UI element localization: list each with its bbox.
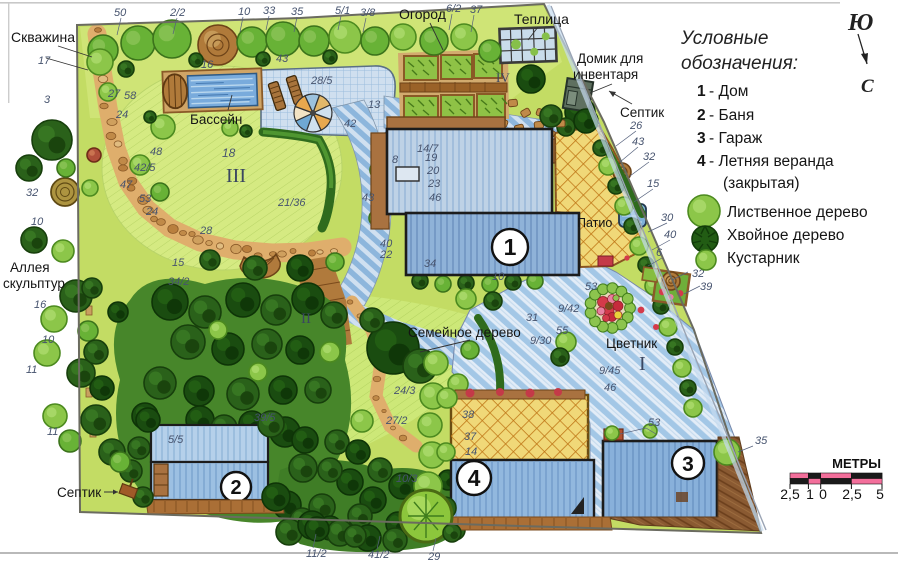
svg-text:2: 2 [230,477,241,499]
svg-text:Условные: Условные [680,28,768,49]
svg-text:3/8: 3/8 [360,7,376,19]
svg-text:35: 35 [755,435,768,447]
svg-text:28: 28 [199,225,213,237]
svg-text:31: 31 [526,312,538,324]
svg-text:Хвойное дерево: Хвойное дерево [727,227,844,244]
svg-text:39: 39 [700,281,712,293]
svg-text:II: II [301,311,311,327]
svg-text:15: 15 [647,178,660,190]
svg-text:55: 55 [556,325,569,337]
svg-text:МЕТРЫ: МЕТРЫ [832,456,881,471]
svg-text:18: 18 [222,146,236,160]
svg-text:Семейное дерево: Семейное дерево [408,325,521,340]
svg-text:40: 40 [664,229,677,241]
svg-text:10/3: 10/3 [396,473,418,485]
svg-text:29: 29 [427,551,440,563]
svg-text:Теплица: Теплица [514,11,569,27]
svg-text:5/5: 5/5 [168,434,184,446]
svg-text:16: 16 [34,299,47,311]
svg-text:2/2: 2/2 [169,7,185,19]
svg-text:41/2: 41/2 [368,549,389,561]
svg-text:Бассейн: Бассейн [190,112,242,127]
svg-text:3: 3 [697,130,706,147]
svg-text:53: 53 [139,193,152,205]
svg-text:Кустарник: Кустарник [727,250,800,267]
svg-text:11: 11 [47,426,58,438]
svg-text:4: 4 [697,153,706,170]
svg-text:9/30: 9/30 [530,335,552,347]
svg-text:IV: IV [496,70,510,85]
svg-text:Септик: Септик [620,105,664,120]
svg-text:(закрытая): (закрытая) [723,175,800,192]
svg-text:Огород: Огород [399,6,446,22]
svg-text:16: 16 [201,59,214,71]
svg-text:Ю: Ю [847,10,873,36]
svg-text:III: III [226,165,246,187]
svg-text:42/5: 42/5 [134,162,156,174]
svg-text:Лиственное дерево: Лиственное дерево [727,204,868,221]
svg-text:39/5: 39/5 [254,412,276,424]
svg-text:53: 53 [585,281,598,293]
svg-text:53: 53 [648,417,661,429]
svg-text:скульптур: скульптур [3,276,65,291]
svg-text:- Гараж: - Гараж [709,130,763,147]
svg-text:2,5: 2,5 [842,486,862,502]
svg-text:8: 8 [392,154,399,166]
svg-text:- Дом: - Дом [709,83,748,100]
svg-text:43: 43 [276,53,289,65]
svg-text:Септик: Септик [57,485,101,500]
svg-text:0: 0 [819,486,827,502]
svg-text:22: 22 [379,249,392,261]
svg-text:27: 27 [107,88,121,100]
svg-text:26: 26 [629,120,643,132]
svg-text:5/1: 5/1 [335,5,350,17]
svg-text:3: 3 [44,94,51,106]
svg-text:15: 15 [172,257,185,269]
svg-text:5: 5 [876,486,884,502]
svg-text:42: 42 [344,118,356,130]
svg-text:1: 1 [504,234,517,260]
svg-text:Аллея: Аллея [10,260,50,275]
svg-text:1: 1 [806,486,814,502]
svg-text:С: С [861,76,874,97]
svg-text:46: 46 [604,382,617,394]
svg-text:1: 1 [697,83,706,100]
svg-text:обозначения:: обозначения: [681,53,798,74]
svg-text:14: 14 [465,446,477,458]
svg-text:6/2: 6/2 [446,3,461,15]
svg-text:9/45: 9/45 [599,365,621,377]
svg-text:11: 11 [26,364,37,376]
svg-text:50: 50 [114,7,127,19]
svg-text:3: 3 [682,453,694,476]
svg-text:33: 33 [263,5,276,17]
svg-text:4: 4 [468,465,481,491]
svg-text:10: 10 [31,216,44,228]
svg-text:10: 10 [492,271,505,283]
svg-text:37: 37 [464,431,477,443]
svg-text:- Баня: - Баня [709,107,754,124]
svg-text:28/5: 28/5 [310,75,333,87]
svg-text:23: 23 [427,178,441,190]
svg-text:17: 17 [38,55,51,67]
svg-text:43: 43 [632,136,645,148]
svg-text:10: 10 [238,6,251,18]
svg-text:I: I [639,353,646,375]
svg-text:27/2: 27/2 [385,415,407,427]
svg-text:34/2: 34/2 [168,276,189,288]
svg-text:24: 24 [145,206,158,218]
svg-text:19: 19 [425,152,437,164]
svg-text:Цветник: Цветник [606,336,657,351]
svg-text:24: 24 [115,109,128,121]
svg-text:58: 58 [124,90,137,102]
svg-text:9/42: 9/42 [558,303,579,315]
svg-text:43: 43 [362,192,375,204]
svg-text:11/2: 11/2 [306,548,327,560]
svg-text:46: 46 [429,192,442,204]
svg-text:35: 35 [291,6,304,18]
svg-text:37: 37 [470,4,483,16]
svg-text:6: 6 [656,247,663,259]
svg-text:32: 32 [26,187,38,199]
svg-text:Домик для: Домик для [577,51,643,66]
svg-text:30: 30 [661,212,674,224]
svg-text:32: 32 [643,151,655,163]
svg-text:24/3: 24/3 [393,385,416,397]
svg-text:2,5: 2,5 [780,486,800,502]
svg-text:13: 13 [368,99,381,111]
svg-text:38: 38 [462,409,475,421]
svg-text:инвентаря: инвентаря [573,67,638,82]
svg-text:47: 47 [120,179,133,191]
svg-text:Патио: Патио [577,216,612,230]
svg-text:2: 2 [697,107,706,124]
svg-text:34: 34 [424,258,436,270]
svg-text:48: 48 [150,146,163,158]
svg-text:- Летняя веранда: - Летняя веранда [709,153,834,170]
svg-text:20: 20 [426,165,440,177]
svg-text:Скважина: Скважина [11,29,75,45]
svg-text:10: 10 [42,334,55,346]
svg-text:21/36: 21/36 [277,197,306,209]
